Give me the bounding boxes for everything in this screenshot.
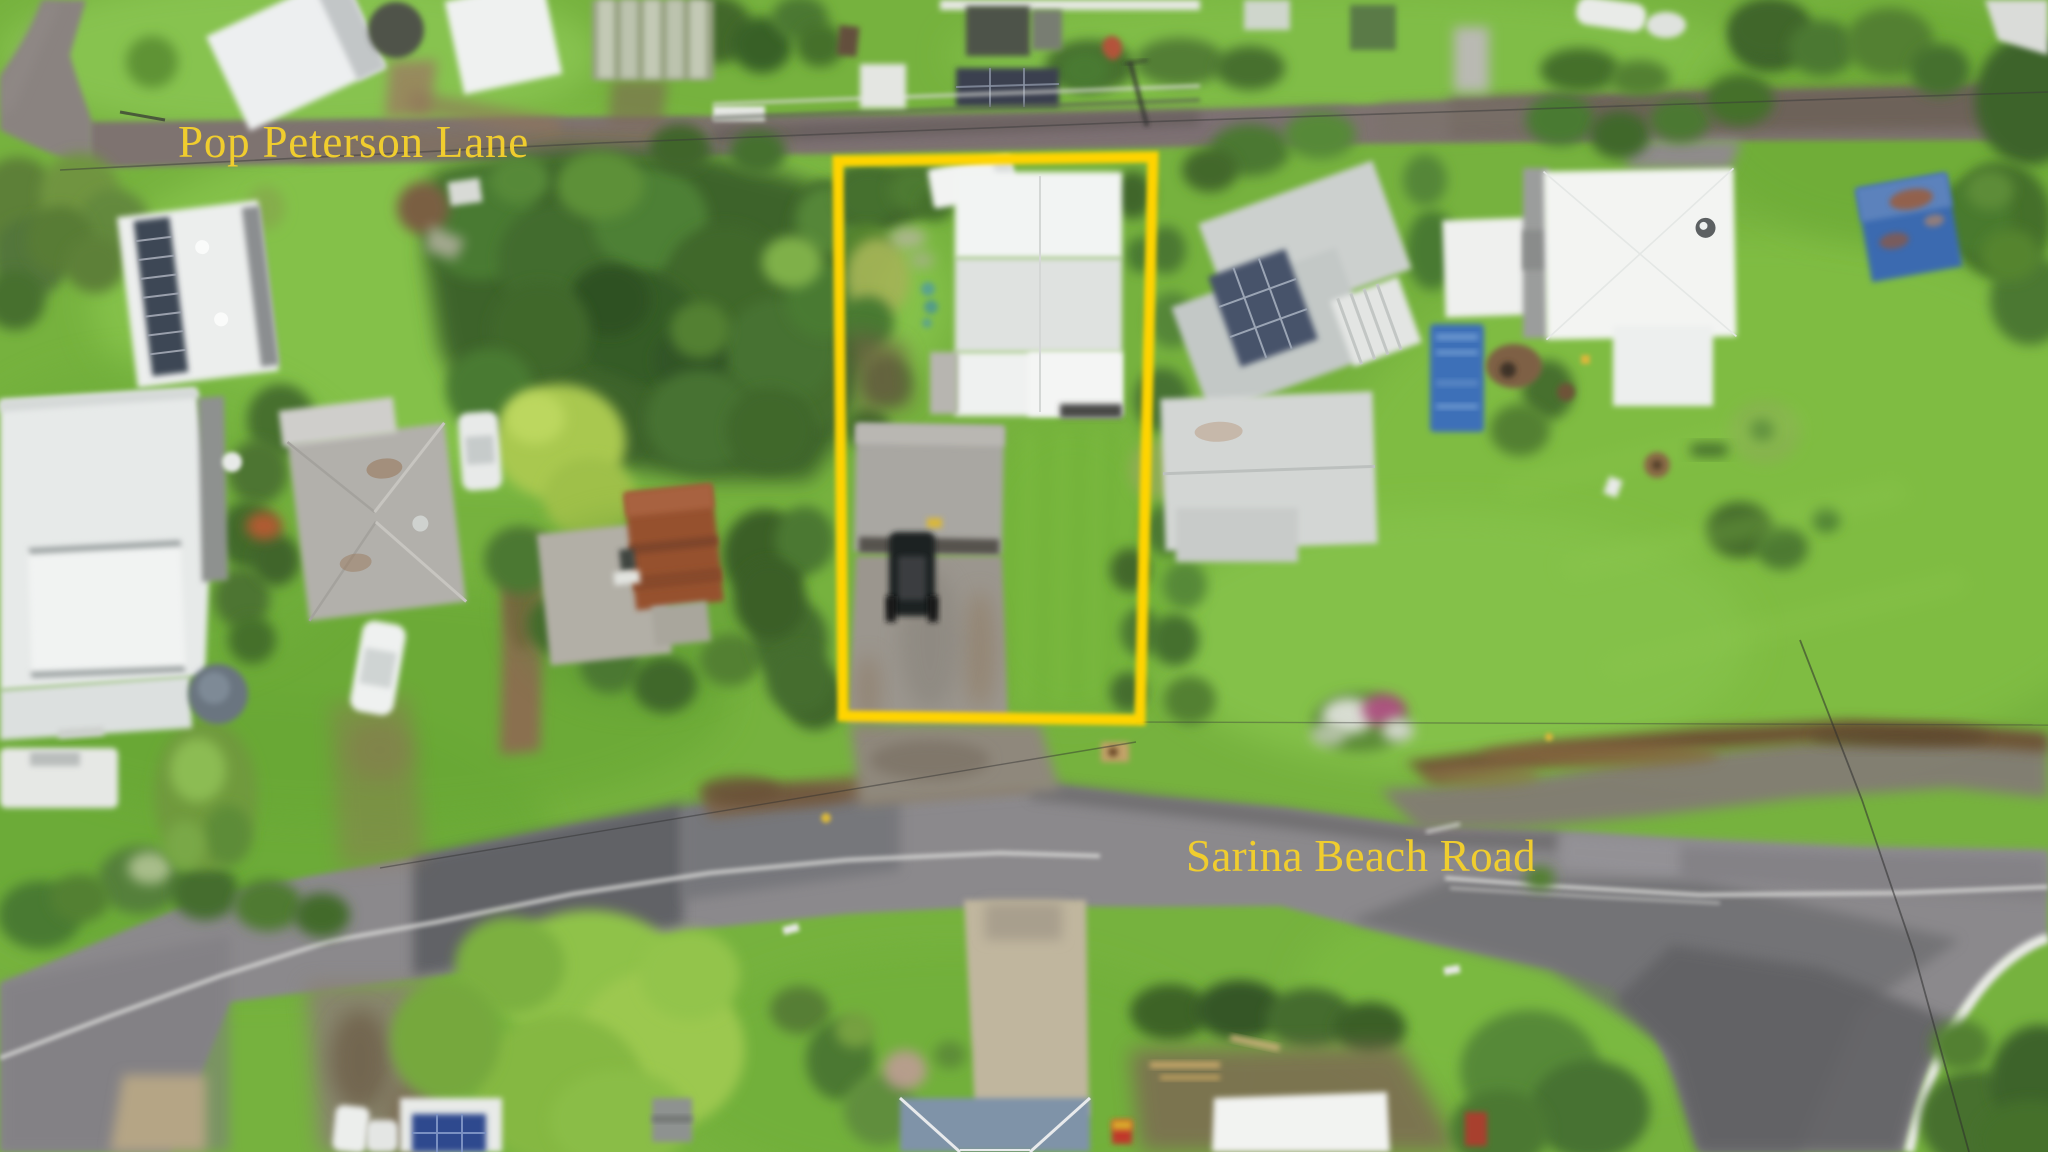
svg-text:Sarina Beach Road: Sarina Beach Road <box>1186 831 1536 881</box>
svg-text:Pop Peterson Lane: Pop Peterson Lane <box>178 117 529 167</box>
